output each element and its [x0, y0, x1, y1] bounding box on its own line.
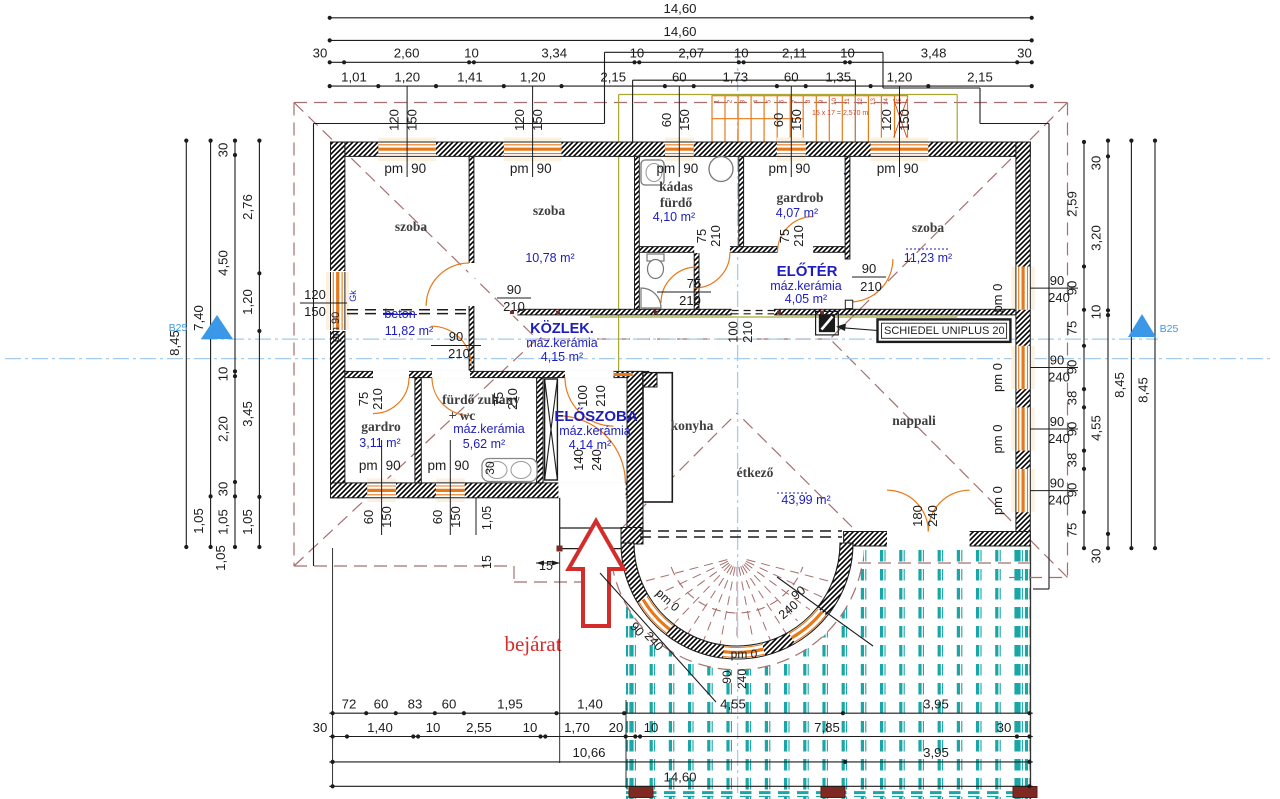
svg-text:150: 150: [448, 506, 463, 528]
svg-text:3,11 m²: 3,11 m²: [359, 436, 400, 450]
svg-text:szoba: szoba: [533, 203, 566, 218]
svg-text:100: 100: [726, 321, 741, 343]
svg-text:75: 75: [694, 229, 709, 243]
svg-text:15 x 17 = 2,570 m: 15 x 17 = 2,570 m: [812, 110, 868, 117]
svg-text:30: 30: [1089, 156, 1104, 171]
svg-text:4,55: 4,55: [720, 697, 746, 712]
svg-text:1,70: 1,70: [564, 720, 590, 735]
svg-text:pm: pm: [359, 458, 378, 473]
svg-text:90: 90: [1050, 353, 1064, 368]
svg-text:ELŐSZOBA: ELŐSZOBA: [554, 407, 638, 425]
svg-text:1,95: 1,95: [497, 697, 523, 712]
svg-text:30: 30: [483, 461, 497, 475]
svg-text:SCHIEDEL UNIPLUS 20: SCHIEDEL UNIPLUS 20: [884, 325, 1005, 337]
svg-text:90: 90: [683, 161, 698, 176]
svg-text:240: 240: [589, 449, 604, 471]
svg-text:pm: pm: [510, 161, 529, 176]
svg-text:3,45: 3,45: [240, 401, 255, 427]
svg-text:pm: pm: [428, 458, 447, 473]
svg-text:máz.kerámia: máz.kerámia: [526, 336, 598, 350]
svg-text:60: 60: [771, 113, 786, 127]
svg-text:210: 210: [370, 388, 385, 410]
svg-text:150: 150: [405, 109, 420, 131]
svg-text:5: 5: [766, 99, 773, 103]
svg-text:75: 75: [491, 392, 506, 406]
svg-text:60: 60: [374, 697, 389, 712]
svg-text:2,76: 2,76: [240, 194, 255, 220]
svg-text:10: 10: [523, 720, 538, 735]
svg-text:B25: B25: [169, 322, 188, 334]
svg-text:ELŐTÉR: ELŐTÉR: [777, 262, 838, 280]
svg-text:15: 15: [480, 555, 494, 569]
svg-text:100: 100: [575, 385, 590, 407]
svg-text:120: 120: [304, 287, 326, 302]
svg-text:1,05: 1,05: [216, 509, 231, 535]
svg-text:pm: pm: [877, 161, 896, 176]
svg-text:1,05: 1,05: [480, 506, 494, 530]
svg-text:90: 90: [537, 161, 552, 176]
svg-text:90: 90: [454, 458, 469, 473]
svg-text:150: 150: [304, 304, 326, 319]
svg-text:90: 90: [1050, 414, 1064, 429]
svg-text:7: 7: [792, 99, 799, 103]
svg-text:10: 10: [426, 720, 441, 735]
svg-text:210: 210: [679, 293, 701, 308]
svg-text:8,45: 8,45: [167, 330, 182, 356]
svg-text:1,05: 1,05: [240, 509, 255, 535]
svg-text:nappali: nappali: [892, 413, 936, 428]
svg-text:1,20: 1,20: [887, 70, 913, 85]
svg-text:13: 13: [870, 98, 877, 105]
svg-text:38: 38: [1065, 391, 1080, 406]
svg-text:90: 90: [720, 670, 734, 684]
svg-text:90: 90: [904, 161, 919, 176]
svg-text:210: 210: [740, 321, 755, 343]
svg-text:12: 12: [857, 98, 864, 105]
svg-text:90: 90: [1050, 273, 1064, 288]
svg-text:90: 90: [507, 282, 521, 297]
svg-text:90: 90: [1065, 360, 1080, 375]
svg-text:90: 90: [411, 161, 426, 176]
svg-text:2,11: 2,11: [782, 46, 807, 61]
svg-text:210: 210: [593, 385, 608, 407]
svg-text:14,60: 14,60: [663, 770, 696, 785]
svg-text:10: 10: [630, 46, 645, 61]
svg-text:8,45: 8,45: [1136, 377, 1151, 403]
svg-text:4,05 m²: 4,05 m²: [785, 292, 827, 306]
svg-text:3,95: 3,95: [923, 697, 949, 712]
svg-text:4,07 m²: 4,07 m²: [776, 206, 818, 220]
svg-text:10: 10: [840, 46, 855, 61]
svg-text:10: 10: [644, 720, 659, 735]
svg-text:140: 140: [571, 449, 586, 471]
svg-text:10: 10: [464, 46, 479, 61]
svg-text:pm 0: pm 0: [990, 486, 1005, 515]
svg-text:1,40: 1,40: [577, 697, 603, 712]
svg-text:90: 90: [386, 458, 401, 473]
svg-text:20: 20: [609, 720, 624, 735]
svg-text:15: 15: [539, 559, 553, 573]
svg-text:4,50: 4,50: [216, 250, 231, 276]
svg-text:120: 120: [879, 109, 894, 131]
svg-text:240: 240: [735, 669, 749, 689]
svg-text:75: 75: [777, 229, 792, 243]
svg-text:150: 150: [379, 506, 394, 528]
svg-text:90: 90: [862, 261, 876, 276]
svg-text:75: 75: [687, 276, 701, 291]
svg-text:90: 90: [1065, 483, 1080, 498]
svg-text:10: 10: [216, 367, 231, 382]
svg-text:szoba: szoba: [912, 220, 945, 235]
svg-text:8: 8: [805, 99, 812, 103]
svg-text:83: 83: [408, 697, 423, 712]
svg-text:8,45: 8,45: [1112, 372, 1127, 398]
svg-text:1,41: 1,41: [457, 70, 483, 85]
svg-text:11,23 m²: 11,23 m²: [904, 251, 952, 265]
svg-text:2,55: 2,55: [466, 720, 492, 735]
svg-text:2,59: 2,59: [1065, 191, 1080, 217]
svg-text:120: 120: [387, 109, 402, 131]
svg-text:30: 30: [997, 720, 1012, 735]
svg-text:konyha: konyha: [671, 418, 714, 433]
svg-text:3,34: 3,34: [541, 46, 567, 61]
svg-text:máz.kerámia: máz.kerámia: [453, 422, 525, 436]
svg-text:72: 72: [342, 697, 357, 712]
svg-text:60: 60: [659, 113, 674, 127]
svg-text:gardro: gardro: [361, 419, 401, 434]
svg-text:11: 11: [844, 98, 851, 105]
svg-text:30: 30: [216, 482, 231, 497]
svg-text:szoba: szoba: [395, 219, 428, 234]
svg-text:2,60: 2,60: [394, 46, 420, 61]
svg-text:90: 90: [795, 161, 810, 176]
svg-text:10: 10: [1089, 305, 1104, 320]
svg-text:4: 4: [753, 99, 760, 103]
svg-text:1,20: 1,20: [520, 70, 546, 85]
svg-text:120: 120: [512, 109, 527, 131]
svg-text:1,05: 1,05: [191, 508, 206, 534]
svg-text:pm: pm: [657, 161, 676, 176]
svg-text:2,15: 2,15: [600, 70, 626, 85]
svg-text:2,20: 2,20: [216, 416, 231, 442]
svg-text:30: 30: [1089, 549, 1104, 564]
svg-text:gardrob: gardrob: [776, 190, 823, 205]
svg-text:pm 0: pm 0: [731, 647, 758, 661]
svg-text:180: 180: [910, 505, 925, 527]
svg-text:pm: pm: [384, 161, 403, 176]
svg-text:2,07: 2,07: [678, 46, 704, 61]
svg-text:Gk: Gk: [348, 290, 358, 302]
svg-text:pm: pm: [769, 161, 788, 176]
svg-text:10,66: 10,66: [572, 745, 605, 760]
svg-text:4,10 m²: 4,10 m²: [653, 210, 695, 224]
svg-text:bejárat: bejárat: [504, 632, 561, 656]
svg-text:14,60: 14,60: [663, 24, 696, 39]
svg-text:75: 75: [1065, 523, 1080, 538]
svg-text:210: 210: [791, 225, 806, 247]
svg-text:4,55: 4,55: [1089, 415, 1104, 441]
svg-text:3,95: 3,95: [923, 745, 949, 760]
svg-text:38: 38: [1065, 453, 1080, 468]
svg-text:60: 60: [361, 510, 376, 524]
svg-text:3,48: 3,48: [921, 46, 947, 61]
svg-text:2: 2: [727, 99, 734, 103]
svg-text:30: 30: [1017, 46, 1032, 61]
svg-text:210: 210: [860, 279, 882, 294]
svg-text:máz.kerámia: máz.kerámia: [770, 279, 842, 293]
svg-text:90: 90: [1065, 281, 1080, 296]
svg-text:210: 210: [505, 388, 520, 410]
svg-text:30: 30: [313, 46, 328, 61]
svg-text:14: 14: [883, 98, 890, 105]
svg-text:90: 90: [1050, 476, 1064, 491]
svg-text:1,35: 1,35: [825, 70, 851, 85]
svg-text:7,40: 7,40: [191, 305, 206, 331]
svg-text:14,60: 14,60: [663, 1, 696, 16]
svg-text:1,20: 1,20: [394, 70, 420, 85]
svg-text:30: 30: [216, 143, 231, 158]
svg-text:kádas: kádas: [659, 179, 693, 194]
svg-text:KÖZLEK.: KÖZLEK.: [530, 320, 594, 337]
svg-text:60: 60: [784, 70, 799, 85]
svg-text:étkező: étkező: [737, 465, 774, 480]
svg-text:60: 60: [430, 510, 445, 524]
svg-text:1,05: 1,05: [213, 545, 228, 571]
svg-text:75: 75: [1065, 321, 1080, 336]
svg-text:+ wc: + wc: [449, 408, 476, 423]
svg-text:43,99 m²: 43,99 m²: [781, 493, 830, 507]
svg-text:4,15 m²: 4,15 m²: [541, 350, 583, 364]
svg-text:1,73: 1,73: [722, 70, 748, 85]
svg-text:60: 60: [672, 70, 687, 85]
svg-text:1,20: 1,20: [240, 289, 255, 315]
svg-text:11,82 m²: 11,82 m²: [385, 324, 433, 338]
svg-text:210: 210: [448, 346, 470, 361]
svg-text:pm 0: pm 0: [990, 425, 1005, 454]
svg-text:150: 150: [789, 109, 804, 131]
svg-text:1,40: 1,40: [367, 720, 393, 735]
svg-text:fürdő: fürdő: [660, 195, 693, 210]
svg-text:B25: B25: [1160, 323, 1179, 335]
svg-text:máz.kerámia: máz.kerámia: [559, 424, 631, 438]
svg-text:7,85: 7,85: [814, 720, 840, 735]
svg-text:1: 1: [714, 99, 721, 103]
svg-text:pm 0: pm 0: [990, 363, 1005, 392]
svg-text:60: 60: [442, 697, 457, 712]
svg-text:10: 10: [734, 46, 749, 61]
svg-text:150: 150: [677, 109, 692, 131]
svg-text:3: 3: [740, 99, 747, 103]
svg-text:6: 6: [779, 99, 786, 103]
svg-text:30: 30: [313, 720, 328, 735]
svg-text:90: 90: [449, 329, 463, 344]
svg-text:9: 9: [818, 99, 825, 103]
svg-text:10,78 m²: 10,78 m²: [525, 251, 574, 265]
svg-text:10: 10: [831, 98, 838, 105]
svg-text:1,01: 1,01: [341, 70, 367, 85]
svg-text:240: 240: [925, 505, 940, 527]
svg-text:210: 210: [708, 225, 723, 247]
svg-text:90: 90: [1065, 422, 1080, 437]
svg-text:5,62 m²: 5,62 m²: [463, 437, 505, 451]
svg-text:150: 150: [530, 109, 545, 131]
svg-text:pm 0: pm 0: [990, 284, 1005, 313]
svg-text:pm 90: pm 90: [330, 312, 342, 343]
svg-text:75: 75: [356, 392, 371, 406]
svg-text:2,15: 2,15: [967, 70, 993, 85]
svg-text:150: 150: [897, 109, 912, 131]
svg-text:3,20: 3,20: [1089, 225, 1104, 251]
